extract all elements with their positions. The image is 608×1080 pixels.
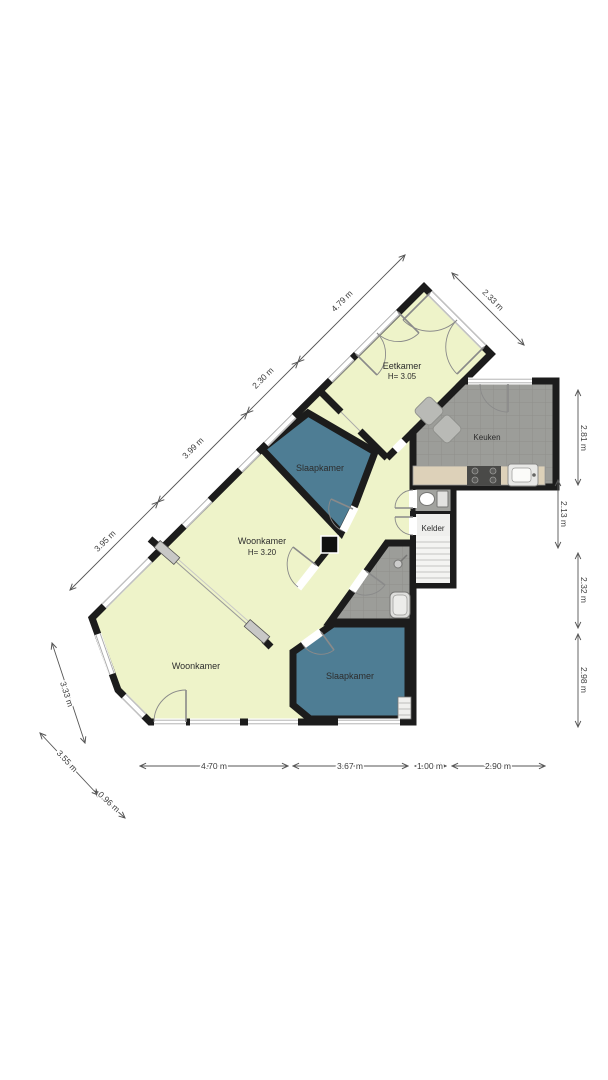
- label-eetkamer-height: H= 3.05: [388, 372, 417, 381]
- column: [321, 536, 338, 553]
- dim-bottom-1: 4.70 m: [201, 761, 227, 771]
- dim-right-3: 2.32 m: [579, 577, 589, 603]
- label-woonkamer-midden-height: H= 3.20: [248, 548, 277, 557]
- floorplan-page: Eetkamer H= 3.05 Keuken Kelder Slaapkame…: [0, 0, 608, 1080]
- dim-bottom-left-1: 3.33 m: [58, 680, 76, 708]
- kitchen-sink-icon: [508, 464, 538, 486]
- dim-top-left-3: 2.30 m: [250, 365, 275, 390]
- window: [190, 720, 240, 724]
- label-woonkamer-midden: Woonkamer: [238, 536, 286, 546]
- door-strip: [154, 720, 186, 724]
- dim-top-left-1: 3.95 m: [92, 528, 117, 553]
- window: [468, 379, 532, 383]
- label-slaapkamer-onder: Slaapkamer: [326, 671, 374, 681]
- dim-right-1: 2.81 m: [579, 425, 589, 451]
- rooms: [92, 287, 556, 722]
- label-slaapkamer-boven: Slaapkamer: [296, 463, 344, 473]
- dim-bottom-left-3: 0.96 m: [96, 789, 122, 814]
- dim-right-4: 2.98 m: [579, 667, 589, 693]
- dim-bottom-left-2: 3.55 m: [55, 748, 80, 774]
- radiator-icon: [398, 697, 411, 719]
- dim-top-right-1: 2.33 m: [480, 287, 505, 312]
- bathtub-icon: [390, 592, 410, 618]
- dim-top-left-2: 3.99 m: [180, 435, 205, 460]
- label-keuken: Keuken: [473, 433, 500, 442]
- dim-bottom-3: 1.00 m: [417, 761, 443, 771]
- window: [338, 720, 400, 724]
- dim-bottom-4: 2.90 m: [485, 761, 511, 771]
- label-woonkamer: Woonkamer: [172, 661, 220, 671]
- floor-plan: Eetkamer H= 3.05 Keuken Kelder Slaapkame…: [0, 0, 608, 1080]
- dim-right-2: 2.13 m: [559, 501, 569, 527]
- stove-icon: [467, 466, 501, 485]
- dim-bottom-2: 3.67 m: [337, 761, 363, 771]
- window: [248, 720, 298, 724]
- label-eetkamer: Eetkamer: [383, 361, 422, 371]
- stairs-icon: [416, 536, 450, 583]
- label-kelder: Kelder: [421, 524, 444, 533]
